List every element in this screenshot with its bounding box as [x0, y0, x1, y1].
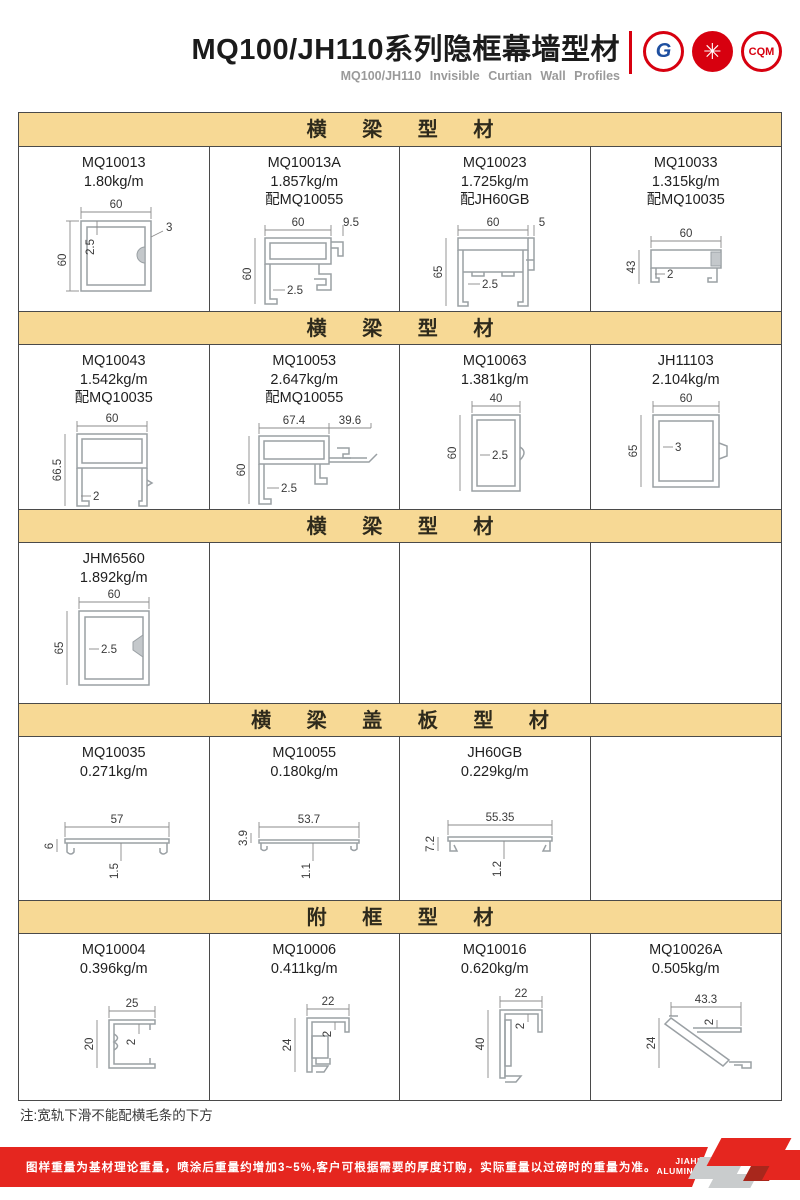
profile-drawing-mq10013a: 60 9.5 60 2.5 — [211, 210, 397, 310]
profile-weight: 0.229kg/m — [400, 763, 590, 782]
profile-model: MQ10013A — [210, 154, 400, 173]
profile-match: 配MQ10055 — [210, 389, 400, 408]
dim-top2: 39.6 — [339, 415, 361, 427]
profile-match: 配MQ10055 — [210, 191, 400, 210]
section-title: 横 梁 型 材 — [19, 113, 781, 147]
dim-wall: 2 — [126, 1039, 138, 1045]
cell-jh11103: JH11103 2.104kg/m 60 65 3 — [591, 345, 782, 509]
section-title: 横 梁 型 材 — [19, 509, 781, 543]
cell-mq10033: MQ10033 1.315kg/m 配MQ10035 60 43 2 — [591, 147, 782, 311]
dim-wall: 1.5 — [109, 863, 121, 879]
profile-model: MQ10023 — [400, 154, 590, 173]
dim-top: 60 — [107, 589, 120, 601]
section-beam-2: 横 梁 型 材 MQ10043 1.542kg/m 配MQ10035 60 66… — [19, 311, 781, 509]
profile-model: MQ10016 — [400, 941, 590, 960]
profile-weight: 2.104kg/m — [591, 371, 782, 390]
dim-top: 60 — [109, 199, 122, 211]
dim-wall: 1.1 — [301, 863, 313, 879]
dim-left: 3.9 — [238, 830, 250, 846]
profile-match: 配MQ10035 — [19, 389, 209, 408]
dim-top2: 5 — [539, 217, 545, 229]
profile-model: JH11103 — [591, 352, 782, 371]
certification-logos: G ✳ CQM — [643, 31, 782, 72]
profile-drawing-jh11103: 60 65 3 — [593, 389, 779, 507]
dim-top: 22 — [322, 996, 335, 1008]
dim-left: 6 — [44, 843, 56, 849]
profile-weight: 1.725kg/m — [400, 173, 590, 192]
dim-wall: 2 — [704, 1019, 716, 1025]
profile-model: MQ10006 — [210, 941, 400, 960]
quality-emblem-icon: ✳ — [692, 31, 733, 72]
cell-mq10006: MQ10006 0.411kg/m 22 24 2 — [210, 934, 401, 1100]
cell-empty — [591, 737, 782, 900]
dim-left: 20 — [84, 1038, 96, 1051]
section-title: 横 梁 盖 板 型 材 — [19, 703, 781, 737]
dim-wall: 2.5 — [492, 450, 508, 462]
cell-mq10013a: MQ10013A 1.857kg/m 配MQ10055 60 9.5 60 2.… — [210, 147, 401, 311]
cell-empty — [591, 543, 782, 703]
profile-match: 配MQ10035 — [591, 191, 782, 210]
dim-top: 60 — [292, 217, 305, 229]
dim-top: 60 — [679, 228, 692, 240]
dim-wall: 2.5 — [85, 239, 97, 255]
section-cover-plates: 横 梁 盖 板 型 材 MQ10035 0.271kg/m 57 6 1.5 — [19, 703, 781, 900]
dim-wall: 2 — [322, 1031, 334, 1037]
section-beam-1: 横 梁 型 材 MQ10013 1.80kg/m 60 60 2.5 3 — [19, 113, 781, 311]
page-title: MQ100/JH110系列隐框幕墙型材 — [0, 26, 620, 68]
profile-drawing-mq10013: 60 60 2.5 3 — [21, 191, 207, 309]
dim-top: 22 — [514, 988, 527, 1000]
dim-wall: 1.2 — [492, 861, 504, 877]
profile-weight: 0.271kg/m — [19, 763, 209, 782]
profile-model: MQ10035 — [19, 744, 209, 763]
profile-weight: 2.647kg/m — [210, 371, 400, 390]
profile-model: MQ10043 — [19, 352, 209, 371]
gb-certification-icon: G — [643, 31, 684, 72]
dim-left: 60 — [236, 463, 248, 476]
page-subtitle: MQ100/JH110 Invisible Curtian Wall Profi… — [0, 69, 620, 83]
profile-drawing-mq10026a: 43.3 24 2 — [593, 978, 779, 1096]
dim-left: 60 — [57, 254, 69, 267]
dim-top: 25 — [125, 998, 138, 1010]
profile-weight: 0.620kg/m — [400, 960, 590, 979]
profile-weight: 0.396kg/m — [19, 960, 209, 979]
footer-disclaimer: 图样重量为基材理论重量，喷涂后重量约增加3~5%,客户可根据需要的厚度订购，实际… — [0, 1159, 657, 1175]
cell-mq10053: MQ10053 2.647kg/m 配MQ10055 67.4 39.6 60 … — [210, 345, 401, 509]
dim-wall: 3 — [675, 442, 681, 454]
profile-drawing-mq10055: 53.7 3.9 1.1 — [211, 781, 397, 891]
cell-jh60gb: JH60GB 0.229kg/m 55.35 7.2 1.2 — [400, 737, 591, 900]
dim-left: 65 — [628, 445, 640, 458]
cell-mq10023: MQ10023 1.725kg/m 配JH60GB 60 5 65 2. — [400, 147, 591, 311]
profile-drawing-jhm6560: 60 65 2.5 — [21, 587, 207, 701]
profile-weight: 0.411kg/m — [210, 960, 400, 979]
dim-top: 60 — [679, 393, 692, 405]
dim-extra: 3 — [166, 222, 172, 234]
dim-left: 24 — [282, 1038, 294, 1051]
profile-model: MQ10055 — [210, 744, 400, 763]
cell-mq10043: MQ10043 1.542kg/m 配MQ10035 60 66.5 2 — [19, 345, 210, 509]
profile-drawing-mq10063: 40 60 2.5 — [402, 389, 588, 507]
dim-top: 55.35 — [485, 812, 514, 824]
cell-mq10004: MQ10004 0.396kg/m 25 20 2 — [19, 934, 210, 1100]
dim-wall: 2.5 — [287, 285, 303, 297]
dim-top: 53.7 — [298, 814, 320, 826]
dim-wall: 2.5 — [281, 483, 297, 495]
dim-left: 65 — [433, 265, 445, 278]
profiles-table: 横 梁 型 材 MQ10013 1.80kg/m 60 60 2.5 3 — [18, 112, 782, 1101]
profile-drawing-mq10016: 22 40 2 — [402, 978, 588, 1096]
profile-weight: 1.892kg/m — [19, 569, 209, 588]
dim-wall: 2 — [93, 491, 99, 503]
profile-model: MQ10026A — [591, 941, 782, 960]
dim-left: 60 — [242, 267, 254, 280]
cell-mq10013: MQ10013 1.80kg/m 60 60 2.5 3 — [19, 147, 210, 311]
dim-left: 66.5 — [52, 458, 64, 480]
profile-weight: 1.542kg/m — [19, 371, 209, 390]
dim-top: 60 — [105, 413, 118, 425]
header-divider — [629, 31, 632, 74]
profile-drawing-mq10053: 67.4 39.6 60 2.5 — [211, 408, 397, 508]
profile-drawing-mq10006: 22 24 2 — [211, 978, 397, 1096]
dim-top: 67.4 — [283, 415, 306, 427]
profile-drawing-mq10035: 57 6 1.5 — [21, 781, 207, 891]
cell-jhm6560: JHM6560 1.892kg/m 60 65 2.5 — [19, 543, 210, 703]
cell-mq10016: MQ10016 0.620kg/m 22 40 2 — [400, 934, 591, 1100]
cell-empty — [210, 543, 401, 703]
dim-top2: 9.5 — [343, 217, 359, 229]
profile-weight: 1.857kg/m — [210, 173, 400, 192]
dim-wall: 2.5 — [101, 644, 117, 656]
section-attached-frames: 附 框 型 材 MQ10004 0.396kg/m 25 20 2 MQ — [19, 900, 781, 1100]
profile-model: MQ10053 — [210, 352, 400, 371]
cell-empty — [400, 543, 591, 703]
dim-left: 40 — [475, 1038, 487, 1051]
dim-left: 60 — [447, 447, 459, 460]
dim-top: 43.3 — [695, 994, 717, 1006]
dim-left: 24 — [646, 1036, 658, 1049]
profile-drawing-mq10033: 60 43 2 — [593, 210, 779, 310]
profile-match: 配JH60GB — [400, 191, 590, 210]
dim-top: 57 — [110, 814, 123, 826]
section-beam-3: 横 梁 型 材 JHM6560 1.892kg/m 60 65 2.5 — [19, 509, 781, 703]
profile-drawing-mq10043: 60 66.5 2 — [21, 408, 207, 508]
cell-mq10055: MQ10055 0.180kg/m 53.7 3.9 1.1 — [210, 737, 401, 900]
dim-top: 60 — [486, 217, 499, 229]
dim-wall: 2.5 — [482, 279, 498, 291]
dim-left: 65 — [54, 642, 66, 655]
profile-weight: 0.505kg/m — [591, 960, 782, 979]
dim-top: 40 — [489, 393, 502, 405]
cell-mq10026a: MQ10026A 0.505kg/m 43.3 24 2 — [591, 934, 782, 1100]
profile-model: JH60GB — [400, 744, 590, 763]
cell-mq10035: MQ10035 0.271kg/m 57 6 1.5 — [19, 737, 210, 900]
page-header: MQ100/JH110系列隐框幕墙型材 MQ100/JH110 Invisibl… — [0, 26, 620, 83]
profile-drawing-mq10023: 60 5 65 2.5 — [402, 210, 588, 310]
section-title: 横 梁 型 材 — [19, 311, 781, 345]
profile-weight: 1.315kg/m — [591, 173, 782, 192]
section-title: 附 框 型 材 — [19, 900, 781, 934]
cell-mq10063: MQ10063 1.381kg/m 40 60 2.5 — [400, 345, 591, 509]
cqm-certification-icon: CQM — [741, 31, 782, 72]
profile-model: MQ10033 — [591, 154, 782, 173]
dim-left: 7.2 — [425, 836, 437, 852]
profile-weight: 1.381kg/m — [400, 371, 590, 390]
profile-model: MQ10063 — [400, 352, 590, 371]
footnote: 注:宽轨下滑不能配横毛条的下方 — [20, 1104, 213, 1124]
profile-drawing-mq10004: 25 20 2 — [21, 978, 207, 1096]
dim-wall: 2 — [515, 1023, 527, 1029]
profile-model: MQ10013 — [19, 154, 209, 173]
profile-drawing-jh60gb: 55.35 7.2 1.2 — [402, 781, 588, 891]
profile-weight: 0.180kg/m — [210, 763, 400, 782]
dim-left: 43 — [626, 260, 638, 273]
profile-weight: 1.80kg/m — [19, 173, 209, 192]
profile-model: MQ10004 — [19, 941, 209, 960]
dim-wall: 2 — [667, 269, 673, 281]
profile-model: JHM6560 — [19, 550, 209, 569]
footer-band: 图样重量为基材理论重量，喷涂后重量约增加3~5%,客户可根据需要的厚度订购，实际… — [0, 1147, 708, 1187]
